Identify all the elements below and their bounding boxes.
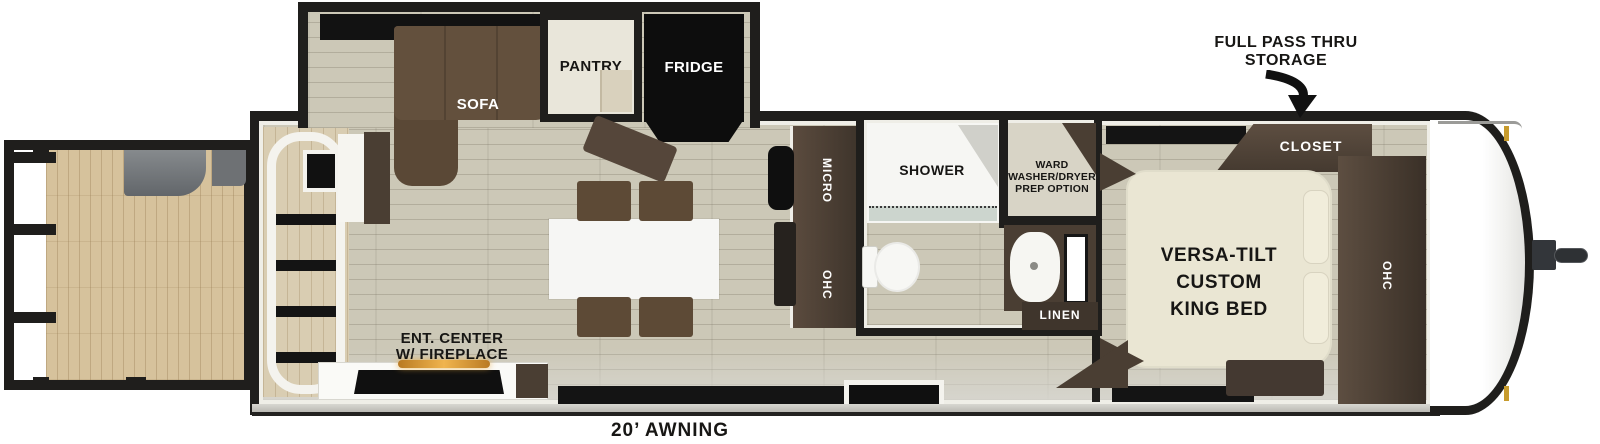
bathroom-partition	[1004, 216, 1098, 225]
front-cap-trim	[1438, 121, 1522, 129]
kitchen-sink	[774, 222, 796, 306]
dinette-table	[549, 219, 719, 299]
hitch-jack	[1532, 240, 1556, 270]
sink-drain	[1030, 262, 1038, 270]
ent-center-label: ENT. CENTER W/ FIREPLACE	[362, 331, 542, 363]
side-cabinet	[338, 134, 366, 222]
bedroom-ohc-label: OHC	[1372, 240, 1394, 312]
deck-rail-rung	[12, 224, 56, 235]
awning-label: 20’ AWNING	[570, 420, 770, 441]
deck-rail-post	[33, 377, 49, 390]
rv-floorplan: SOFA PANTRY FRIDGE MICRO OHC SHOWER WARD…	[0, 0, 1600, 444]
tv	[354, 370, 504, 394]
microwave-label: MICRO	[812, 138, 834, 222]
refrigerator: FRIDGE	[644, 14, 744, 122]
fridge-label: FRIDGE	[664, 60, 723, 77]
down-arrow-icon	[1258, 70, 1318, 120]
bedroom-window	[1106, 126, 1246, 144]
closet-label: CLOSET	[1256, 139, 1366, 155]
deck-rail-rung	[12, 152, 56, 163]
king-bed-label: VERSA-TILT CUSTOM KING BED	[1126, 242, 1312, 323]
cooktop	[768, 146, 794, 210]
deck-rail-post	[33, 140, 49, 153]
rear-ramp-bar	[276, 214, 336, 225]
shower-door-track	[869, 206, 997, 221]
front-cap	[1430, 111, 1534, 415]
pillow	[1303, 190, 1329, 264]
linen-cabinet: LINEN	[1022, 302, 1098, 330]
foot-dresser	[1226, 360, 1324, 396]
pass-thru-storage-label: FULL PASS THRU STORAGE	[1186, 34, 1386, 70]
linen-label: LINEN	[1040, 309, 1081, 322]
bathroom-window	[1064, 234, 1088, 304]
kitchen-ohc-label: OHC	[812, 250, 834, 320]
refrigerator-door	[646, 122, 742, 142]
dinette-chair	[639, 181, 693, 221]
deck-bench-side	[212, 150, 246, 186]
hitch-coupler	[1554, 248, 1588, 263]
dinette-chair	[577, 181, 631, 221]
rear-ramp-window	[303, 150, 339, 192]
dinette-chair	[577, 297, 631, 337]
deck-rail-rung	[12, 312, 56, 323]
awning	[252, 404, 1440, 416]
toilet	[874, 242, 920, 292]
deck-rail-post	[126, 377, 146, 390]
deck-bench	[124, 150, 206, 196]
rear-ramp-bar	[276, 306, 336, 317]
shower-label: SHOWER	[870, 163, 994, 179]
pillow	[1303, 272, 1329, 344]
pantry-shelf	[600, 70, 632, 112]
wardrobe-label: WARD WASHER/DRYER PREP OPTION	[1004, 160, 1100, 195]
rear-ramp-bar	[276, 260, 336, 271]
marker-light	[1504, 386, 1509, 401]
console-cabinet	[516, 364, 548, 398]
marker-light	[1504, 126, 1509, 141]
dinette-chair	[639, 297, 693, 337]
sofa-label: SOFA	[408, 97, 548, 114]
side-cabinet-dark	[364, 132, 390, 224]
sidewall-window	[558, 386, 846, 404]
